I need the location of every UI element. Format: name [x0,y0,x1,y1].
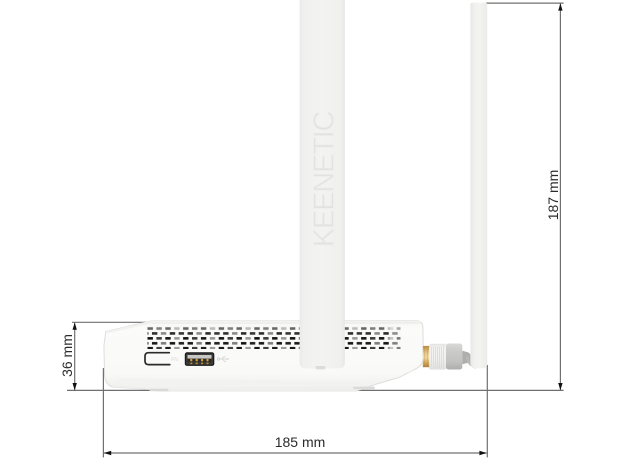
svg-text:187 mm: 187 mm [545,170,561,221]
svg-text:36 mm: 36 mm [59,334,75,377]
svg-text:185 mm: 185 mm [275,434,326,450]
svg-text:FN: FN [171,357,178,363]
svg-text:KEENETIC: KEENETIC [308,112,340,248]
